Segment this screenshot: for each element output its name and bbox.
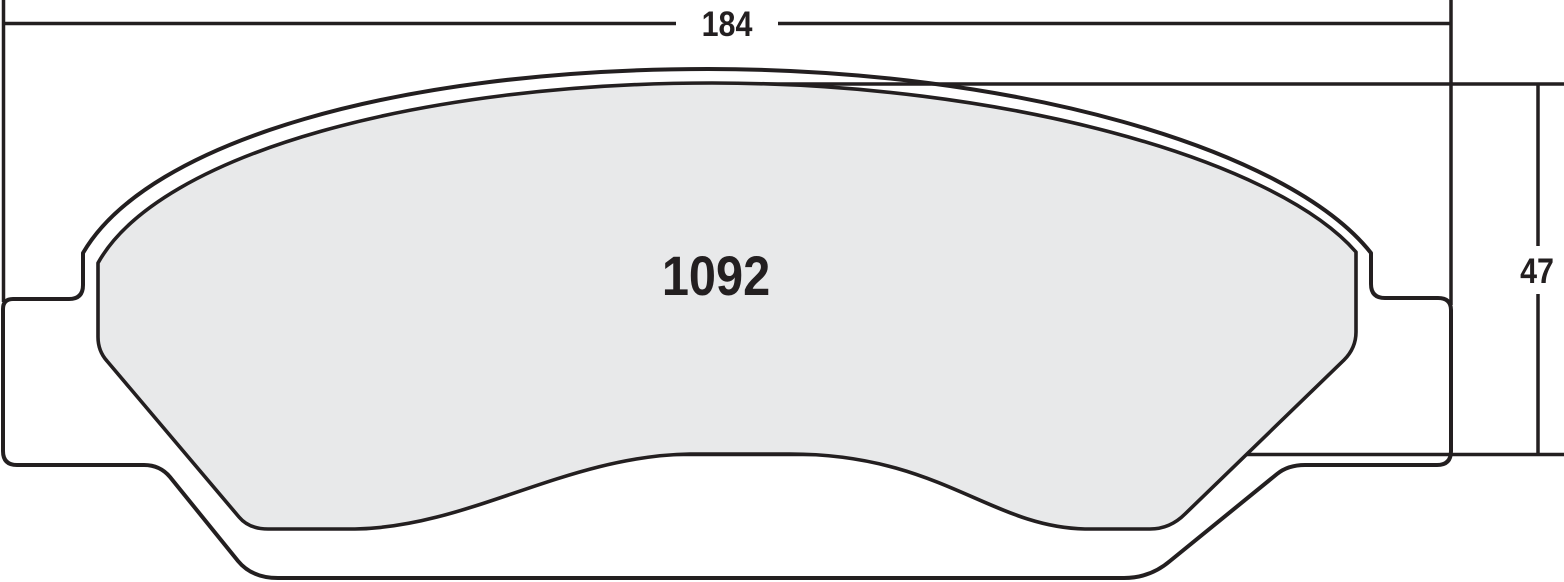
height-dimension-label: 47	[1520, 251, 1554, 290]
brake-pad-drawing-canvas: 184 47 1092	[0, 0, 1564, 582]
brake-pad-technical-drawing: 184 47 1092	[0, 0, 1564, 582]
width-dimension-label: 184	[702, 4, 753, 43]
part-number-label: 1092	[662, 245, 770, 308]
